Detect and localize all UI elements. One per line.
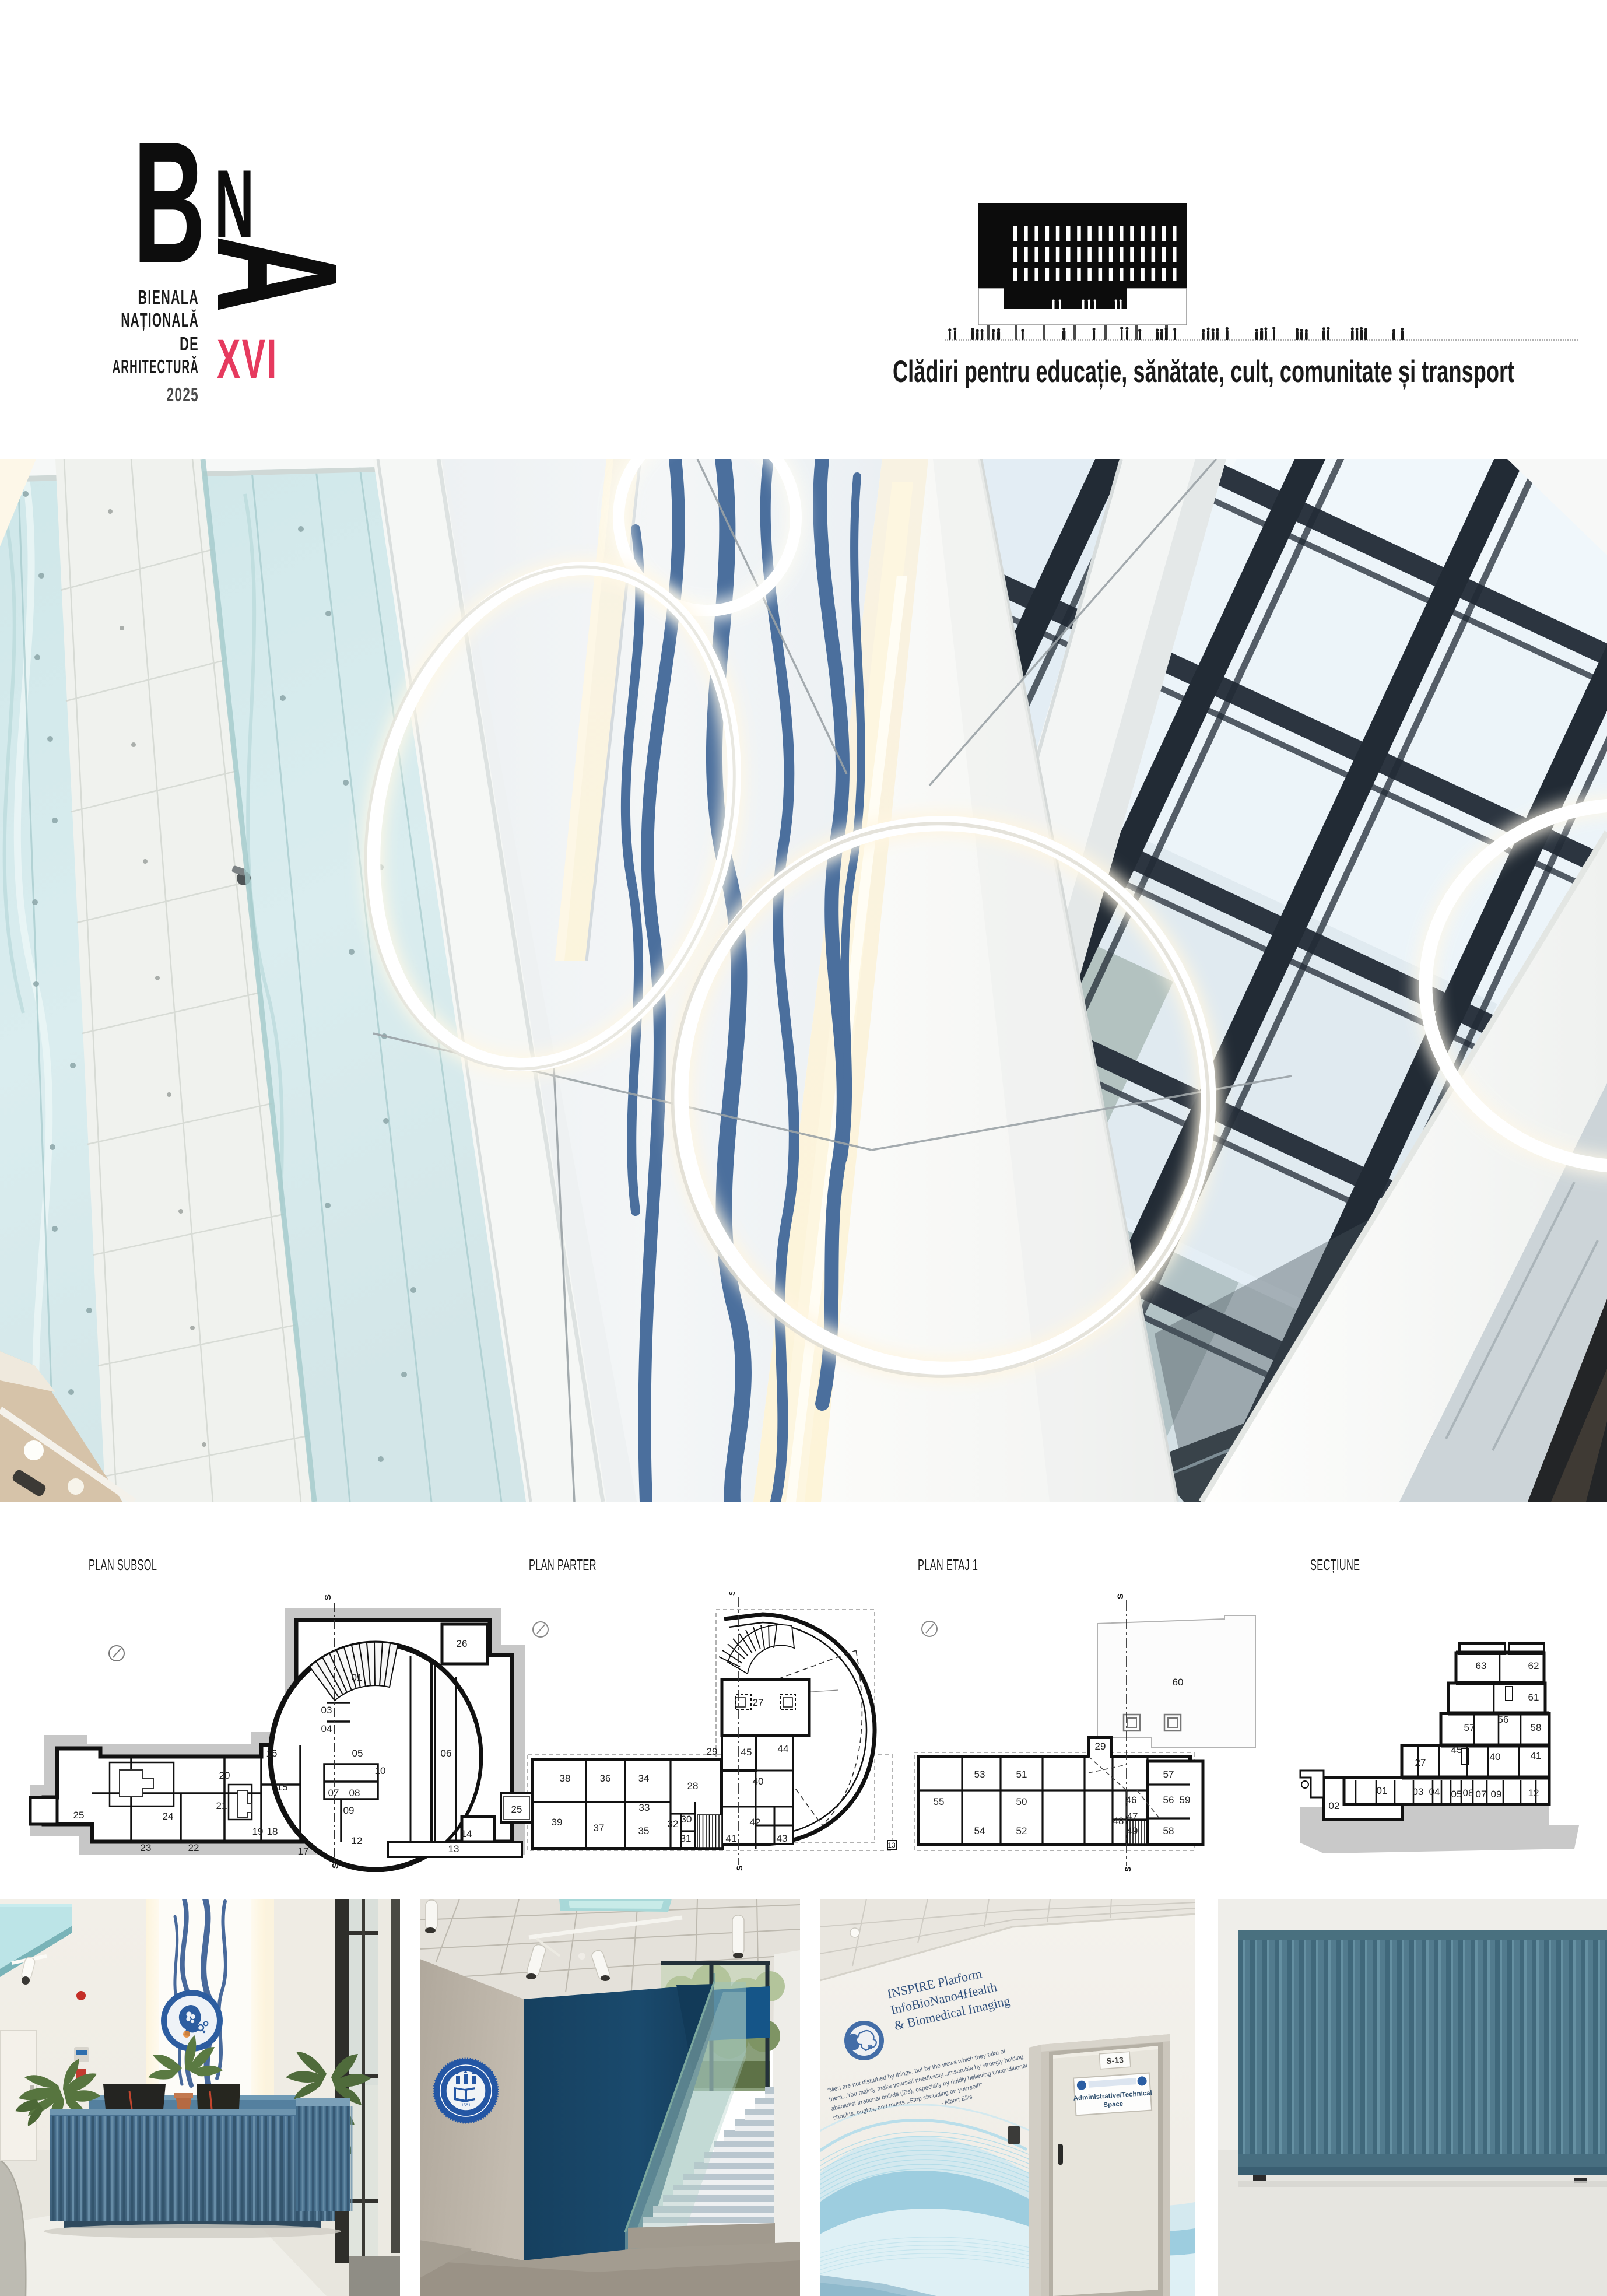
svg-text:1581: 1581 xyxy=(461,2102,471,2108)
svg-text:29: 29 xyxy=(707,1746,718,1757)
svg-text:12: 12 xyxy=(1528,1787,1539,1799)
svg-text:60: 60 xyxy=(1173,1677,1184,1688)
svg-text:36: 36 xyxy=(600,1773,611,1784)
svg-text:15: 15 xyxy=(277,1782,288,1793)
svg-text:37: 37 xyxy=(594,1822,605,1834)
svg-text:41: 41 xyxy=(1531,1750,1542,1761)
svg-text:28: 28 xyxy=(687,1780,699,1792)
svg-text:19: 19 xyxy=(252,1826,264,1837)
svg-text:10: 10 xyxy=(375,1765,386,1776)
svg-text:45: 45 xyxy=(741,1747,752,1758)
svg-text:03: 03 xyxy=(321,1705,332,1716)
svg-text:44: 44 xyxy=(778,1743,789,1754)
svg-text:59: 59 xyxy=(1180,1794,1191,1806)
svg-text:S: S xyxy=(1115,1594,1125,1599)
svg-text:43: 43 xyxy=(777,1833,788,1844)
svg-text:12: 12 xyxy=(352,1835,363,1846)
svg-text:Space: Space xyxy=(1103,2101,1124,2109)
svg-text:29: 29 xyxy=(1095,1741,1106,1752)
svg-text:09: 09 xyxy=(1491,1789,1502,1800)
svg-text:53: 53 xyxy=(974,1769,985,1780)
svg-text:09: 09 xyxy=(343,1805,355,1816)
svg-text:A: A xyxy=(181,236,373,313)
svg-text:05: 05 xyxy=(352,1748,363,1759)
svg-text:35: 35 xyxy=(638,1825,650,1836)
svg-text:34: 34 xyxy=(638,1773,650,1784)
svg-text:DE: DE xyxy=(180,333,199,355)
svg-text:13: 13 xyxy=(448,1843,459,1855)
svg-text:42: 42 xyxy=(750,1817,761,1828)
svg-text:39: 39 xyxy=(552,1817,563,1828)
svg-text:40: 40 xyxy=(753,1776,764,1787)
svg-text:21: 21 xyxy=(216,1800,227,1811)
svg-text:NAȚIONALĂ: NAȚIONALĂ xyxy=(121,309,199,331)
svg-text:16: 16 xyxy=(266,1748,278,1759)
svg-text:04: 04 xyxy=(321,1723,332,1734)
svg-text:17: 17 xyxy=(298,1846,309,1857)
svg-text:56: 56 xyxy=(1498,1714,1509,1725)
svg-text:24: 24 xyxy=(163,1811,174,1822)
svg-text:S: S xyxy=(331,1863,341,1869)
svg-text:62: 62 xyxy=(1528,1660,1539,1671)
svg-text:XVI: XVI xyxy=(217,328,278,390)
svg-text:23: 23 xyxy=(141,1842,152,1853)
svg-text:55: 55 xyxy=(934,1796,945,1807)
svg-text:25: 25 xyxy=(73,1810,85,1821)
svg-text:08: 08 xyxy=(1463,1787,1474,1799)
svg-text:01: 01 xyxy=(352,1672,363,1683)
svg-text:22: 22 xyxy=(188,1842,199,1853)
svg-text:40: 40 xyxy=(1490,1751,1501,1762)
svg-text:50: 50 xyxy=(1016,1796,1027,1807)
svg-text:63: 63 xyxy=(1476,1660,1487,1671)
svg-text:S: S xyxy=(727,1592,736,1596)
svg-text:41: 41 xyxy=(726,1833,737,1844)
svg-text:S: S xyxy=(323,1594,333,1600)
svg-text:02: 02 xyxy=(1329,1800,1340,1811)
svg-text:57: 57 xyxy=(1163,1769,1174,1780)
svg-text:51: 51 xyxy=(1016,1769,1027,1780)
svg-text:48: 48 xyxy=(1113,1815,1124,1827)
svg-text:57: 57 xyxy=(1464,1722,1475,1733)
svg-text:31: 31 xyxy=(680,1833,692,1844)
svg-text:61: 61 xyxy=(1528,1692,1539,1703)
svg-text:S-13: S-13 xyxy=(1106,2055,1124,2066)
svg-text:BIENALA: BIENALA xyxy=(138,286,199,308)
svg-text:07: 07 xyxy=(1476,1789,1487,1800)
svg-text:18: 18 xyxy=(267,1826,278,1837)
svg-text:33: 33 xyxy=(639,1802,650,1813)
svg-text:2025: 2025 xyxy=(167,384,199,405)
svg-text:54: 54 xyxy=(974,1825,985,1836)
svg-text:S: S xyxy=(735,1866,744,1871)
svg-text:52: 52 xyxy=(1016,1825,1027,1836)
svg-text:07: 07 xyxy=(328,1787,339,1799)
svg-text:27: 27 xyxy=(753,1697,764,1708)
svg-text:46: 46 xyxy=(1126,1794,1137,1806)
svg-text:38: 38 xyxy=(560,1773,571,1784)
svg-text:20: 20 xyxy=(219,1770,230,1781)
svg-text:58: 58 xyxy=(1531,1722,1542,1733)
svg-text:30: 30 xyxy=(681,1814,692,1825)
svg-text:08: 08 xyxy=(349,1787,360,1799)
svg-text:ARHITECTURĂ: ARHITECTURĂ xyxy=(113,355,199,377)
svg-text:05: 05 xyxy=(1451,1789,1462,1800)
svg-text:S: S xyxy=(1123,1867,1132,1872)
svg-text:25: 25 xyxy=(511,1804,522,1815)
svg-text:01: 01 xyxy=(1377,1785,1388,1796)
svg-text:56: 56 xyxy=(1163,1794,1174,1806)
svg-text:47: 47 xyxy=(1127,1811,1138,1822)
svg-text:45: 45 xyxy=(1451,1744,1462,1755)
svg-text:03: 03 xyxy=(1413,1786,1424,1797)
svg-text:58: 58 xyxy=(1163,1825,1174,1836)
svg-text:04: 04 xyxy=(1429,1786,1440,1797)
svg-text:06: 06 xyxy=(441,1748,452,1759)
svg-text:14: 14 xyxy=(461,1828,472,1839)
svg-text:32: 32 xyxy=(668,1818,679,1829)
svg-text:26: 26 xyxy=(457,1638,468,1649)
svg-text:27: 27 xyxy=(1415,1757,1426,1768)
svg-text:49: 49 xyxy=(1127,1825,1138,1836)
